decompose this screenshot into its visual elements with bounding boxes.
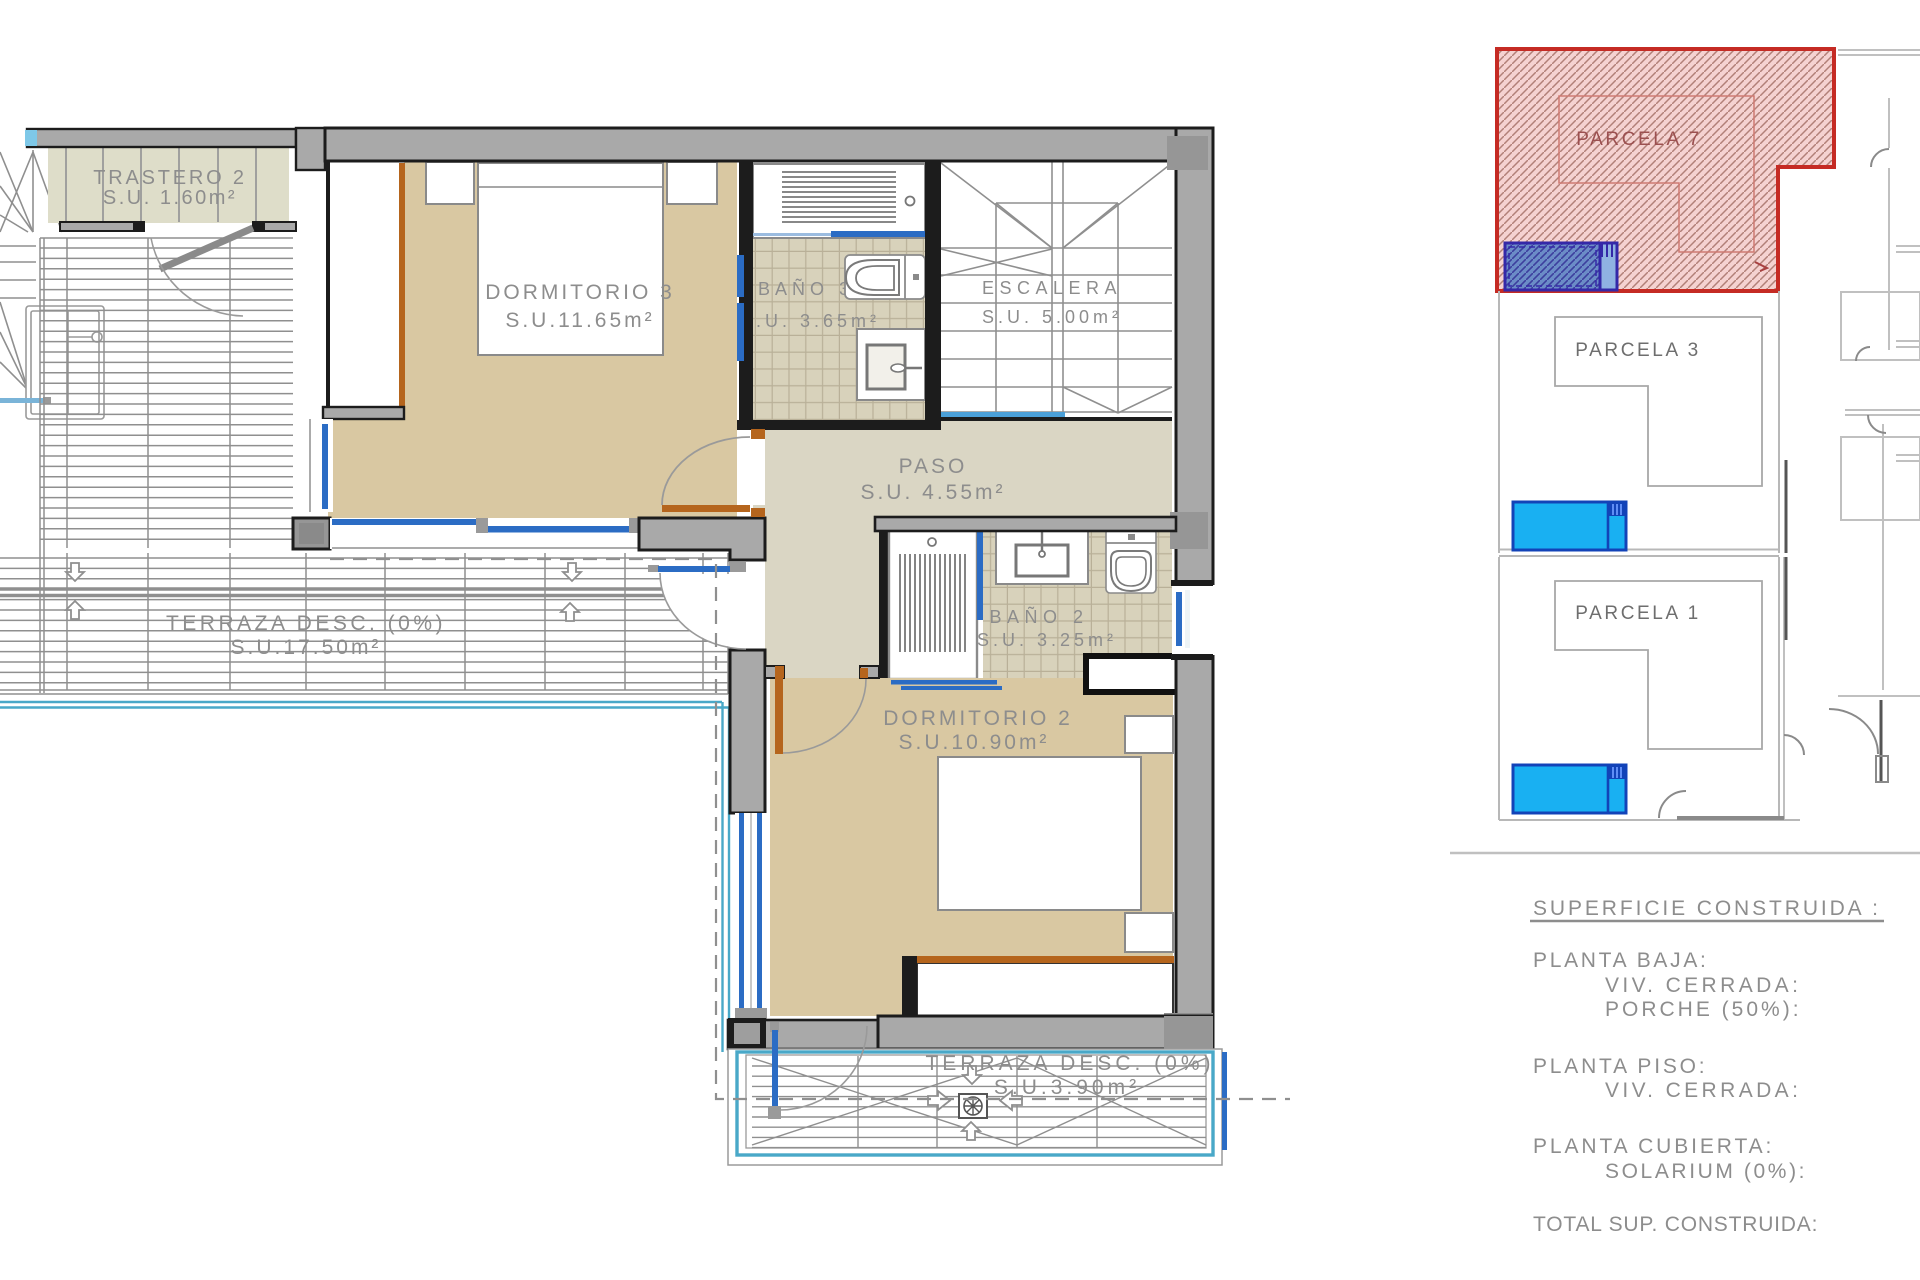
svg-text:PLANTA CUBIERTA:: PLANTA CUBIERTA: bbox=[1533, 1135, 1774, 1158]
svg-text:PARCELA 3: PARCELA 3 bbox=[1575, 340, 1701, 361]
svg-text:BAÑO 2: BAÑO 2 bbox=[989, 606, 1088, 627]
svg-text:S.U.3.90m²: S.U.3.90m² bbox=[994, 1076, 1140, 1099]
svg-text:BAÑO 3: BAÑO 3 bbox=[758, 278, 854, 299]
svg-text:SUPERFICIE CONSTRUIDA :: SUPERFICIE CONSTRUIDA : bbox=[1533, 897, 1881, 920]
svg-text:S.U.11.65m²: S.U.11.65m² bbox=[505, 309, 654, 332]
svg-text:PASO: PASO bbox=[899, 455, 968, 478]
svg-text:DORMITORIO 2: DORMITORIO 2 bbox=[883, 707, 1073, 730]
svg-text:S.U. 5.00m²: S.U. 5.00m² bbox=[982, 307, 1122, 327]
svg-text:DORMITORIO 3: DORMITORIO 3 bbox=[485, 281, 675, 304]
svg-text:PORCHE (50%):: PORCHE (50%): bbox=[1605, 998, 1802, 1021]
svg-text:TOTAL SUP. CONSTRUIDA:: TOTAL SUP. CONSTRUIDA: bbox=[1533, 1213, 1818, 1236]
svg-text:VIV. CERRADA:: VIV. CERRADA: bbox=[1605, 1079, 1801, 1102]
svg-text:S.U.10.90m²: S.U.10.90m² bbox=[899, 731, 1050, 754]
svg-text:VIV. CERRADA:: VIV. CERRADA: bbox=[1605, 974, 1801, 997]
svg-text:TERRAZA DESC. (0%): TERRAZA DESC. (0%) bbox=[166, 612, 446, 635]
svg-text:TERRAZA DESC. (0%): TERRAZA DESC. (0%) bbox=[925, 1052, 1214, 1075]
svg-text:ESCALERA: ESCALERA bbox=[982, 278, 1122, 298]
svg-text:PLANTA PISO:: PLANTA PISO: bbox=[1533, 1055, 1707, 1078]
svg-text:S.U. 4.55m²: S.U. 4.55m² bbox=[860, 481, 1005, 504]
svg-text:TRASTERO 2: TRASTERO 2 bbox=[93, 167, 247, 189]
svg-text:S.U. 3.25m²: S.U. 3.25m² bbox=[977, 630, 1117, 650]
svg-text:PARCELA 7: PARCELA 7 bbox=[1576, 129, 1702, 150]
svg-text:PLANTA BAJA:: PLANTA BAJA: bbox=[1533, 949, 1709, 972]
svg-text:S.U.17.50m²: S.U.17.50m² bbox=[231, 636, 382, 659]
svg-text:SOLARIUM (0%):: SOLARIUM (0%): bbox=[1605, 1160, 1807, 1183]
svg-text:PARCELA 1: PARCELA 1 bbox=[1575, 603, 1701, 624]
svg-text:S.U. 1.60m²: S.U. 1.60m² bbox=[103, 187, 237, 209]
